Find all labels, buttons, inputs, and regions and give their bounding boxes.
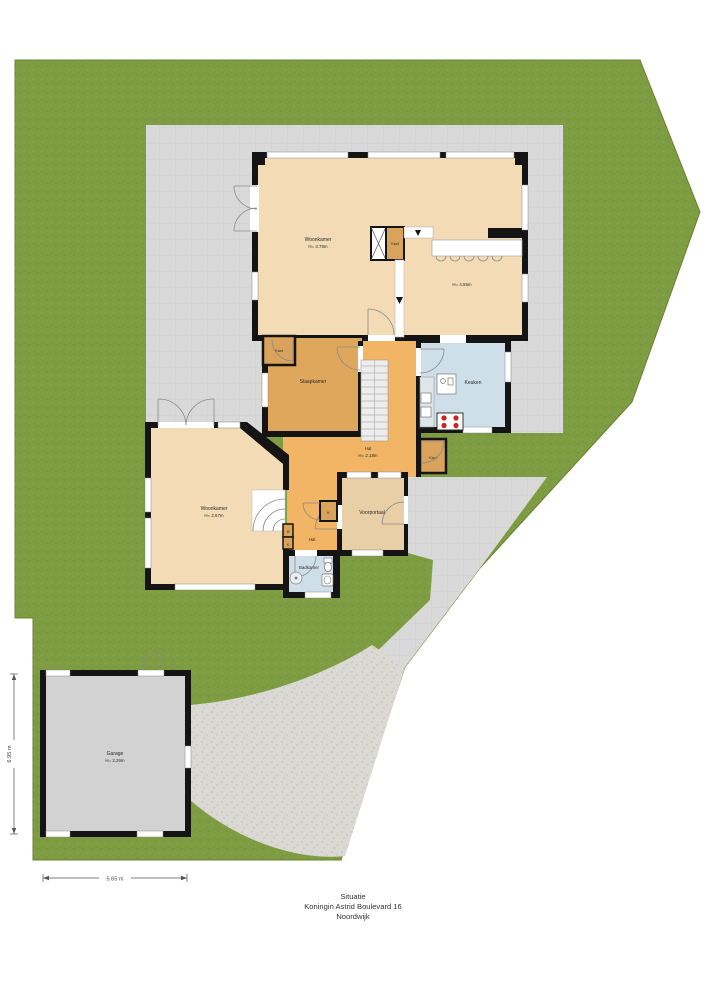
vestibule-label: Voorportaal [359,510,385,516]
window [305,592,331,598]
hall-lower-label: Hal [309,537,316,542]
window [446,152,514,158]
window [368,152,440,158]
door-opening [440,335,466,343]
hall-mid-label: Hal [365,446,372,451]
window [267,152,348,158]
living-lower-label: Woonkamer [201,506,228,512]
window [262,373,268,407]
dining-height: H= 4.55m [452,282,472,287]
garage-label: Garage [107,751,124,757]
door-opening [416,348,421,376]
appliance-icon [421,393,431,403]
window [522,274,528,302]
caption-title: Situatie [340,892,365,901]
kitchen-counter [420,377,434,427]
garage: Garage H= 2.29m [40,652,191,837]
hall-mid-floor2 [283,431,358,477]
bar-counter [432,240,522,256]
bathroom-label: Badkamer [299,565,320,570]
window [505,352,511,382]
washbasin-icon [322,574,333,586]
hall-mid-height: H= 2.18m [358,453,378,458]
window [252,272,258,300]
bedroom-label: Slaapkamer [300,379,327,385]
sink-icon [437,374,456,394]
window [352,550,383,556]
window [463,427,492,433]
dimension-garage-depth-label: 6.95 m [7,745,13,762]
landing-steps-icon [252,490,285,531]
staircase-icon [361,360,388,441]
window [185,746,191,768]
window [138,670,164,676]
living-lower-height: H= 2.67m [204,513,224,518]
window [175,584,255,590]
dimension-garage-width-label: 5.65 m [106,877,123,883]
window [218,422,240,428]
kitchen-label: Keuken [465,380,482,386]
window [145,478,151,512]
door-opening [404,496,408,524]
living-upper-height: H= 3.79m [308,244,328,249]
stove-icon [437,413,463,430]
floorplan-page: Garage H= 2.29m [0,0,707,1000]
closet-top-label: Kast [391,242,400,246]
door-opening [368,335,395,341]
window [347,472,371,478]
window [522,185,528,230]
window [137,831,163,837]
toilet-icon [324,558,332,572]
living-upper-label: Woonkamer [305,237,332,243]
window [145,518,151,568]
door-opening [295,550,317,556]
garage-height: H= 2.29m [105,758,125,763]
situation-plan: Garage H= 2.29m [0,0,707,1000]
window [46,831,70,837]
meter-closet-label: M [287,530,290,534]
shower-icon [290,572,302,584]
window [378,472,401,478]
window [46,670,70,676]
appliance-icon [421,407,431,417]
closet-k-label: K [327,511,330,515]
upper-block: Kast Woonkamer H= 3.79m H= 4.55m [234,152,528,365]
caption-address: Koningin Astrid Boulevard 16 [304,902,402,911]
caption-city: Noordwijk [336,912,370,921]
caption: Situatie Koningin Astrid Boulevard 16 No… [304,892,402,921]
